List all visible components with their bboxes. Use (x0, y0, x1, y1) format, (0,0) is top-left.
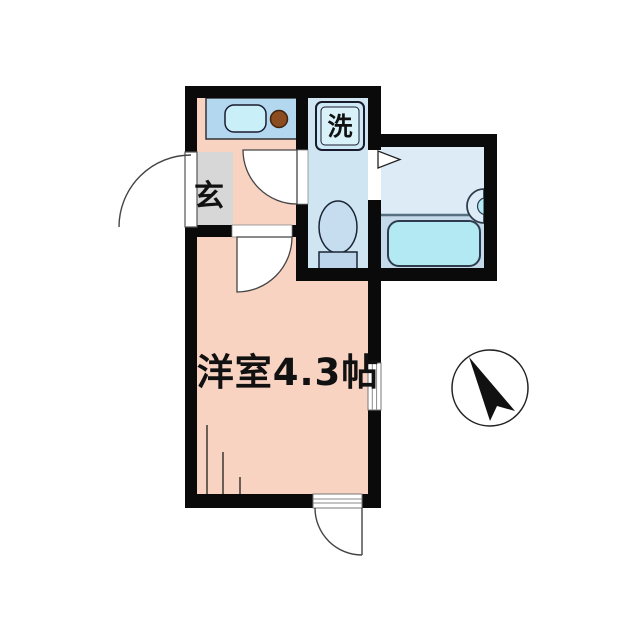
floor-plan: 洗 (0, 0, 640, 640)
toilet-doorway (296, 150, 308, 204)
wall-wet-area-bottom (296, 268, 497, 281)
wall-toilet-left-upper (296, 98, 308, 150)
wall-bottom-left (185, 494, 313, 508)
wall-right-lower (368, 410, 381, 508)
floor-plan-page: 洗 (0, 0, 640, 640)
wall-left-lower (185, 227, 197, 508)
south-doorway (313, 494, 362, 508)
wall-right-upper (368, 86, 381, 150)
laundry-label: 洗 (327, 112, 352, 141)
main-room-label: 洋室4.3帖 (197, 351, 380, 394)
wall-right-middle (368, 200, 381, 363)
toilet-bowl (319, 201, 357, 253)
entrance-door-swing (119, 155, 191, 227)
south-door-swing (315, 508, 362, 555)
genkan-label: 玄 (194, 179, 224, 214)
toilet-tank (319, 252, 357, 269)
wall-hall-bottom-right (292, 225, 308, 237)
room-floors (197, 98, 484, 494)
compass (452, 350, 528, 426)
wall-bath-right (484, 134, 497, 281)
main-room-doorway (232, 225, 292, 237)
wall-top (185, 86, 381, 98)
kitchen-sink (225, 105, 266, 132)
bathtub (388, 221, 480, 266)
wall-bath-top (381, 134, 497, 147)
wall-left-upper (185, 86, 197, 152)
stove-burner-icon (271, 111, 288, 128)
